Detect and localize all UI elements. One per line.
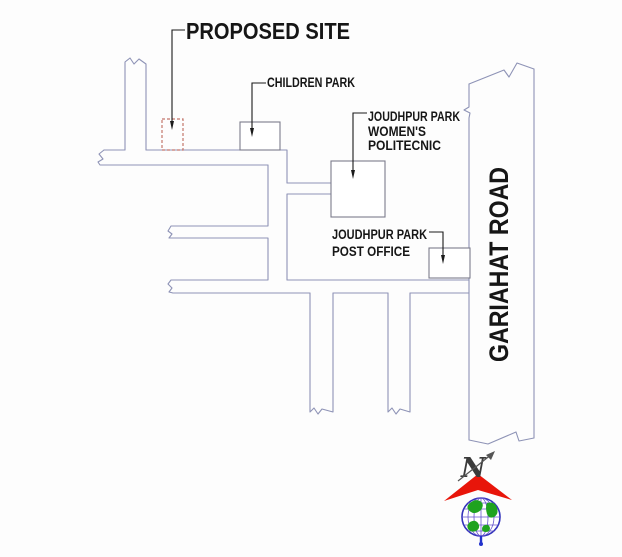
top-road-bottom-edge xyxy=(98,150,268,165)
south-road-1 xyxy=(310,293,333,414)
proposed-site-label: PROPOSED SITE xyxy=(186,18,350,44)
site-map-page: PROPOSED SITE CHILDREN PARK JOUDHPUR PAR… xyxy=(0,0,622,557)
children-park-box xyxy=(240,122,280,150)
polytechnic-driveway xyxy=(287,183,331,280)
proposed-site-arrow xyxy=(170,121,174,130)
site-map-svg: PROPOSED SITE CHILDREN PARK JOUDHPUR PAR… xyxy=(0,0,622,557)
post-office-label-line2: POST OFFICE xyxy=(332,244,410,259)
polytechnic-label-line1: JOUDHPUR PARK xyxy=(368,109,460,124)
gariahat-road-top-break xyxy=(469,63,534,84)
polytechnic-label-line3: POLITECNIC xyxy=(368,138,441,153)
north-sketch-arrow-tip xyxy=(486,451,495,460)
stub-road-top-left xyxy=(125,58,146,150)
globe-tail-drop xyxy=(479,542,483,546)
gariahat-road-bottom-break xyxy=(469,432,534,444)
gariahat-road-label: GARIAHAT ROAD xyxy=(484,167,514,362)
post-office-box xyxy=(429,248,470,278)
top-road-top-edge xyxy=(104,150,287,183)
children-park-label: CHILDREN PARK xyxy=(267,75,355,90)
block-a-edges xyxy=(168,165,268,293)
polytechnic-label-line2: WOMEN'S xyxy=(368,124,426,139)
polytechnic-box xyxy=(331,161,385,217)
south-road-2 xyxy=(388,293,410,414)
post-office-label-line1: JOUDHPUR PARK xyxy=(332,227,427,242)
proposed-site-leader xyxy=(172,30,185,122)
north-compass: N xyxy=(444,451,512,546)
